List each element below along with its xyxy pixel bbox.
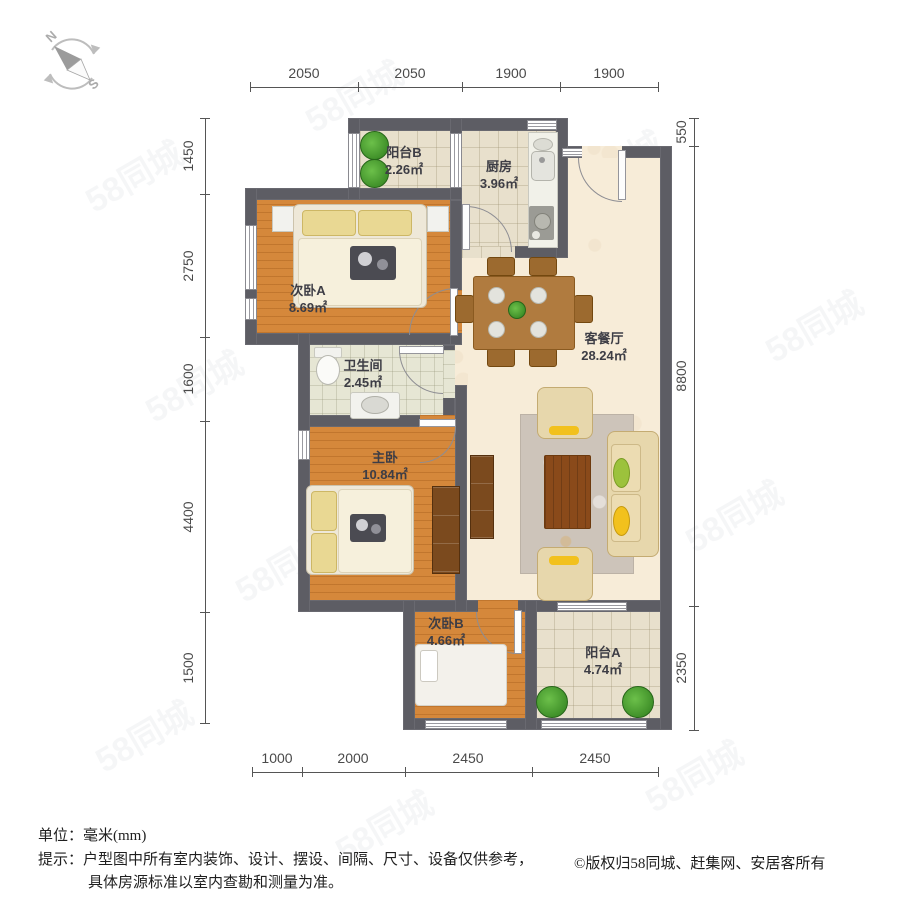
dim-tick <box>532 767 533 777</box>
dining-chair <box>574 295 593 323</box>
room-name: 卫生间 <box>343 357 382 374</box>
dining-chair <box>487 257 515 276</box>
dim-tick <box>658 767 659 777</box>
wall <box>298 600 415 612</box>
room-name: 厨房 <box>480 158 518 175</box>
room-area: 2.45㎡ <box>343 374 382 391</box>
unit-value: 毫米(mm) <box>83 828 146 844</box>
window-master-bedroom <box>298 430 310 460</box>
stove-knob <box>532 231 540 239</box>
toilet-bowl <box>316 355 340 385</box>
room-label-balcony-a: 阳台A 4.74㎡ <box>584 644 622 678</box>
bed-tray <box>350 246 396 280</box>
tv-cabinet <box>470 455 494 539</box>
copyright: ©版权归58同城、赶集网、安居客所有 <box>574 852 825 873</box>
dim-tick <box>252 767 253 777</box>
dim-tick <box>689 730 699 731</box>
tip-text-1: 户型图中所有室内装饰、设计、摆设、间隔、尺寸、设备仅供参考， <box>83 852 533 868</box>
dim-tick <box>200 337 210 338</box>
dim-label: 2050 <box>394 65 425 81</box>
bathroom-door-opening <box>443 350 455 398</box>
dining-chair <box>487 348 515 367</box>
window-bedroom-a <box>245 225 257 290</box>
plate <box>488 287 505 304</box>
dim-label: 2450 <box>579 750 610 766</box>
room-label-bedroom-b: 次卧B 4.66㎡ <box>427 615 465 649</box>
room-label-living-dining: 客餐厅 28.24㎡ <box>581 330 627 364</box>
dim-tick <box>250 82 251 92</box>
tip-text-2: 具体房源标准以室内查勘和测量为准。 <box>88 875 343 891</box>
room-name: 次卧B <box>427 615 465 632</box>
kitchen-door-leaf <box>462 204 470 250</box>
room-name: 阳台B <box>385 144 423 161</box>
dim-tick <box>358 82 359 92</box>
dim-label: 8800 <box>673 360 689 391</box>
dim-label: 1900 <box>593 65 624 81</box>
compass-north-label: N <box>43 28 60 45</box>
dim-label: 2000 <box>337 750 368 766</box>
room-area: 8.69㎡ <box>289 299 327 316</box>
room-label-master-bedroom: 主卧 10.84㎡ <box>362 449 408 483</box>
kitchen-dish <box>533 138 553 151</box>
window-balcony-kitchen <box>450 133 462 188</box>
plant <box>622 686 654 718</box>
coffee-table <box>544 455 591 529</box>
dim-line-bottom <box>252 772 658 773</box>
plate <box>530 321 547 338</box>
tray-plate <box>358 252 372 266</box>
pillow <box>358 210 412 236</box>
plate <box>488 321 505 338</box>
kitchen-sink <box>531 151 555 181</box>
room-name: 客餐厅 <box>581 330 627 347</box>
room-label-kitchen: 厨房 3.96㎡ <box>480 158 518 192</box>
nightstand <box>427 206 449 232</box>
room-area: 28.24㎡ <box>581 347 627 364</box>
stove-burner <box>534 213 551 230</box>
room-area: 2.26㎡ <box>385 161 423 178</box>
balcony-a-sliding-door <box>557 602 627 611</box>
pillow <box>311 533 337 573</box>
dim-label: 2750 <box>180 250 196 281</box>
wardrobe <box>432 486 460 574</box>
room-label-bathroom: 卫生间 2.45㎡ <box>343 357 382 391</box>
washbasin-sink <box>361 396 389 414</box>
pillow <box>420 650 438 682</box>
nightstand <box>272 206 294 232</box>
watermark: 58同城 <box>635 727 751 822</box>
dim-label: 1900 <box>495 65 526 81</box>
sofa-pillow-yellow <box>613 506 630 536</box>
plant <box>536 686 568 718</box>
unit-line: 单位：毫米(mm) <box>38 824 146 845</box>
dim-tick <box>200 194 210 195</box>
tray-plate <box>356 519 368 531</box>
room-name: 次卧A <box>289 282 327 299</box>
table-plant <box>508 301 526 319</box>
copyright-text: ©版权归58同城、赶集网、安居客所有 <box>574 856 825 872</box>
dim-tick <box>658 82 659 92</box>
bedroom-b-door-leaf <box>514 610 522 654</box>
master-door-leaf <box>419 419 456 427</box>
compass: N S <box>38 26 106 98</box>
window-balcony-a <box>541 720 647 729</box>
window-bedroom-b <box>425 720 507 729</box>
tip-label: 提示： <box>38 852 83 868</box>
wall <box>660 146 672 730</box>
pillow <box>302 210 356 236</box>
bathroom-door-leaf <box>399 346 444 354</box>
pillow <box>311 491 337 531</box>
entry-door-opening <box>582 146 622 158</box>
room-name: 阳台A <box>584 644 622 661</box>
dim-label: 1600 <box>180 363 196 394</box>
dim-line-top <box>250 87 658 88</box>
dim-label: 2350 <box>673 652 689 683</box>
wall <box>403 600 415 730</box>
tip-line-1: 提示：户型图中所有室内装饰、设计、摆设、间隔、尺寸、设备仅供参考， <box>38 848 533 869</box>
window-living <box>562 148 584 157</box>
dim-label: 550 <box>673 120 689 143</box>
dim-tick <box>689 118 699 119</box>
wall <box>403 600 672 612</box>
floorplan-canvas: 58同城 58同城 58同城 58同城 58同城 58同城 58同城 58同城 … <box>0 0 900 900</box>
dim-tick <box>689 146 699 147</box>
plate <box>530 287 547 304</box>
room-area: 10.84㎡ <box>362 466 408 483</box>
window-kitchen <box>527 120 557 130</box>
tip-line-2: 具体房源标准以室内查勘和测量为准。 <box>88 871 343 892</box>
entry-door-leaf <box>618 150 626 200</box>
armchair-cushion <box>549 426 579 435</box>
room-area: 4.66㎡ <box>427 632 465 649</box>
watermark: 58同城 <box>75 127 191 222</box>
dim-tick <box>200 723 210 724</box>
watermark: 58同城 <box>85 687 201 782</box>
dining-chair <box>529 257 557 276</box>
tray-plate <box>371 524 381 534</box>
watermark: 58同城 <box>675 467 791 562</box>
dim-label: 4400 <box>180 501 196 532</box>
dim-line-right <box>694 118 695 730</box>
dim-label: 1500 <box>180 652 196 683</box>
room-label-bedroom-a: 次卧A 8.69㎡ <box>289 282 327 316</box>
sofa-pillow-green <box>613 458 630 488</box>
kitchen-faucet <box>539 157 545 163</box>
wall <box>525 600 537 730</box>
watermark: 58同城 <box>755 277 871 372</box>
dim-tick <box>200 118 210 119</box>
dim-label: 2050 <box>288 65 319 81</box>
unit-label: 单位： <box>38 828 83 844</box>
dim-tick <box>302 767 303 777</box>
dining-chair <box>455 295 474 323</box>
dim-tick <box>689 606 699 607</box>
room-area: 3.96㎡ <box>480 175 518 192</box>
bedroom-b-door-opening <box>478 600 518 612</box>
dim-label: 2450 <box>452 750 483 766</box>
room-label-balcony-b: 阳台B 2.26㎡ <box>385 144 423 178</box>
armchair-cushion <box>549 556 579 565</box>
window-balcony-b <box>348 133 360 188</box>
dim-tick <box>200 612 210 613</box>
compass-south-label: S <box>85 75 102 92</box>
window-bedroom-a-small <box>245 298 257 320</box>
dim-tick <box>405 767 406 777</box>
dim-tick <box>200 421 210 422</box>
dim-tick <box>462 82 463 92</box>
room-name: 主卧 <box>362 449 408 466</box>
dim-label: 1000 <box>261 750 292 766</box>
dining-chair <box>529 348 557 367</box>
dim-tick <box>560 82 561 92</box>
room-area: 4.74㎡ <box>584 661 622 678</box>
tray-plate <box>377 259 388 270</box>
dim-label: 1450 <box>180 140 196 171</box>
